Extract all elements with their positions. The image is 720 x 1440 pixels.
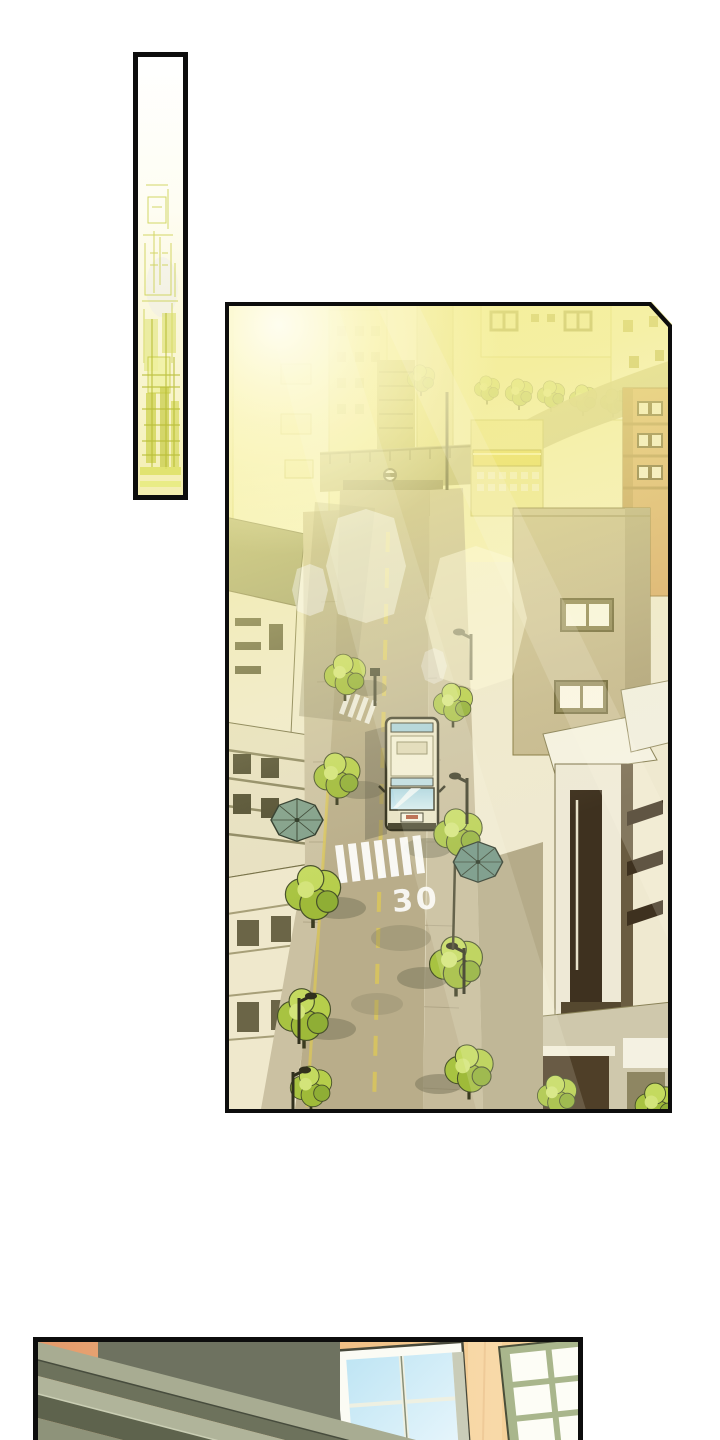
comic-page: 30 [0, 0, 720, 1440]
street-scene: 30 [225, 302, 672, 1113]
hex-flare [326, 509, 406, 623]
green-window [499, 1342, 578, 1440]
panel-sliver [133, 52, 188, 500]
sun-glare [225, 302, 672, 1113]
sliver-art [138, 57, 183, 495]
panel-bottom [33, 1337, 583, 1440]
haze-smudge [146, 257, 178, 317]
panel-main: 30 [225, 302, 672, 1113]
hex-flare [292, 564, 328, 616]
house-exterior-art [38, 1342, 578, 1440]
hex-flare [421, 648, 447, 684]
wall-highlight [468, 1342, 502, 1440]
